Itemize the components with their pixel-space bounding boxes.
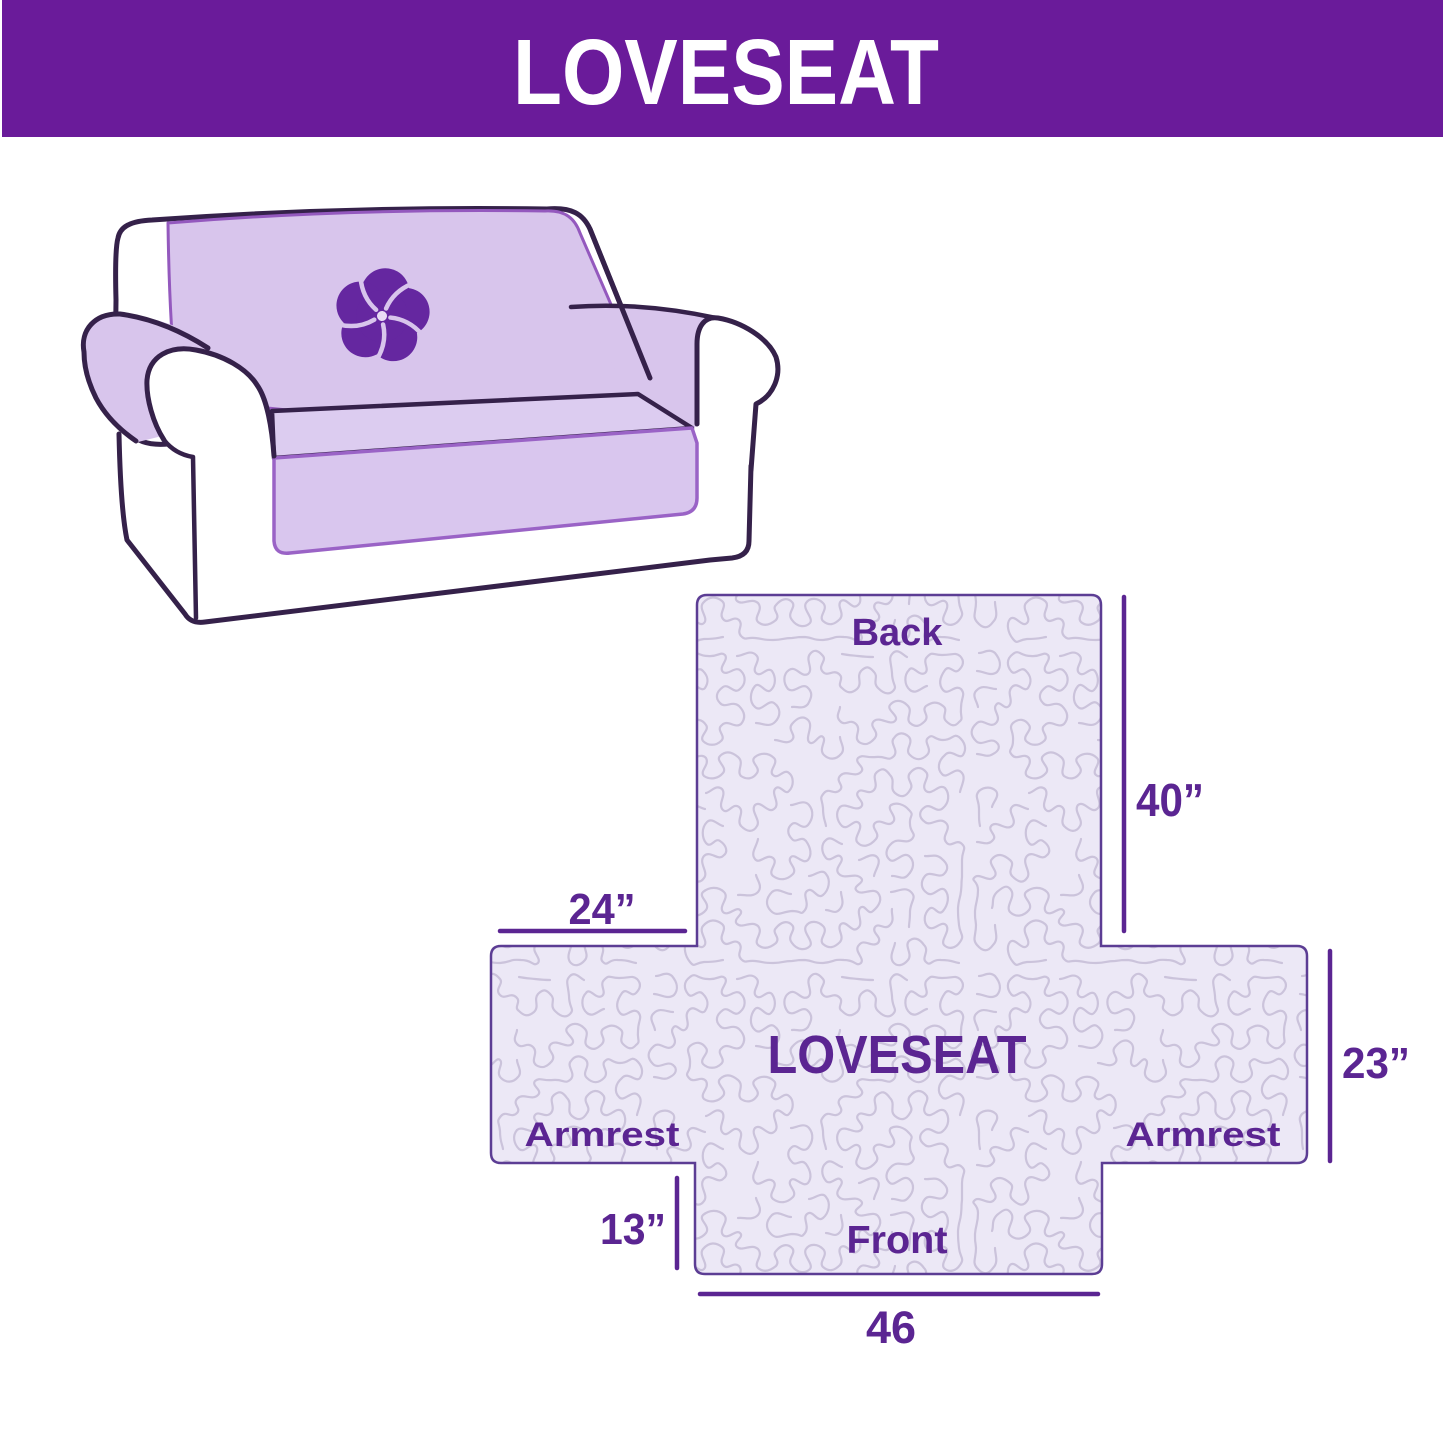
svg-text:LOVESEAT: LOVESEAT — [768, 1025, 1027, 1085]
svg-text:LOVESEAT: LOVESEAT — [513, 20, 939, 124]
svg-text:40”: 40” — [1136, 774, 1204, 826]
svg-text:24”: 24” — [569, 885, 636, 934]
svg-text:46: 46 — [866, 1302, 916, 1353]
svg-text:Back: Back — [852, 612, 944, 654]
svg-text:Armrest: Armrest — [525, 1116, 680, 1154]
svg-text:Armrest: Armrest — [1126, 1116, 1281, 1154]
svg-text:Front: Front — [847, 1219, 948, 1262]
svg-text:23”: 23” — [1342, 1039, 1410, 1088]
svg-text:13”: 13” — [600, 1205, 666, 1254]
